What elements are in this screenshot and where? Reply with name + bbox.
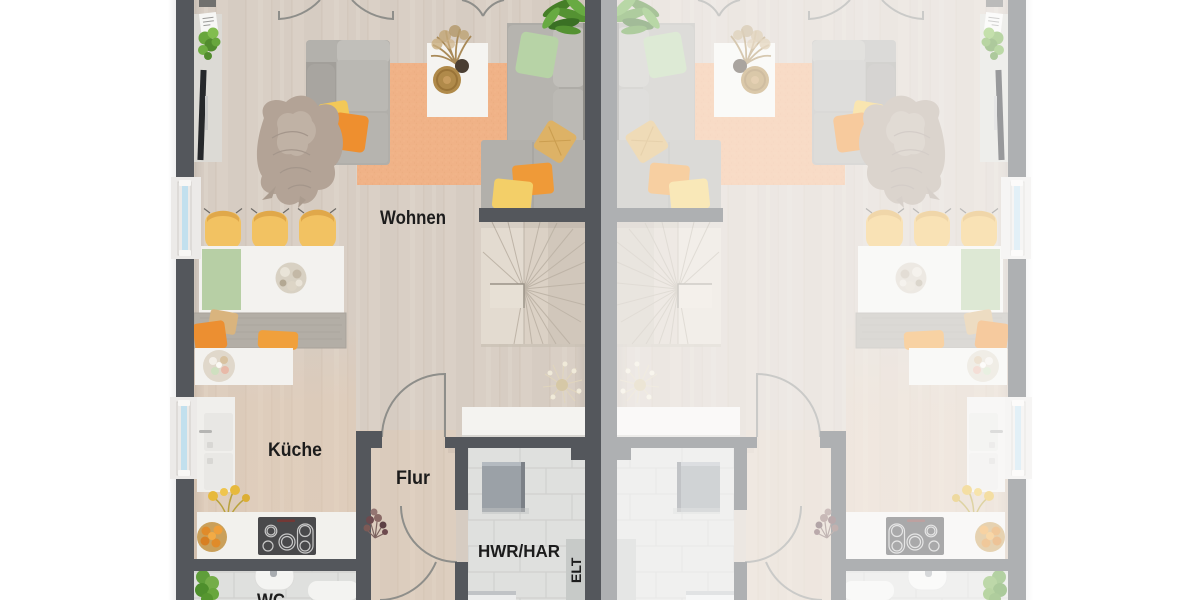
svg-text:HWR/HAR: HWR/HAR [478,541,560,561]
svg-text:Küche: Küche [268,440,322,461]
svg-text:WC: WC [257,591,285,600]
svg-text:Flur: Flur [396,468,431,489]
svg-text:ELT: ELT [568,557,584,583]
svg-text:Wohnen: Wohnen [380,208,446,229]
